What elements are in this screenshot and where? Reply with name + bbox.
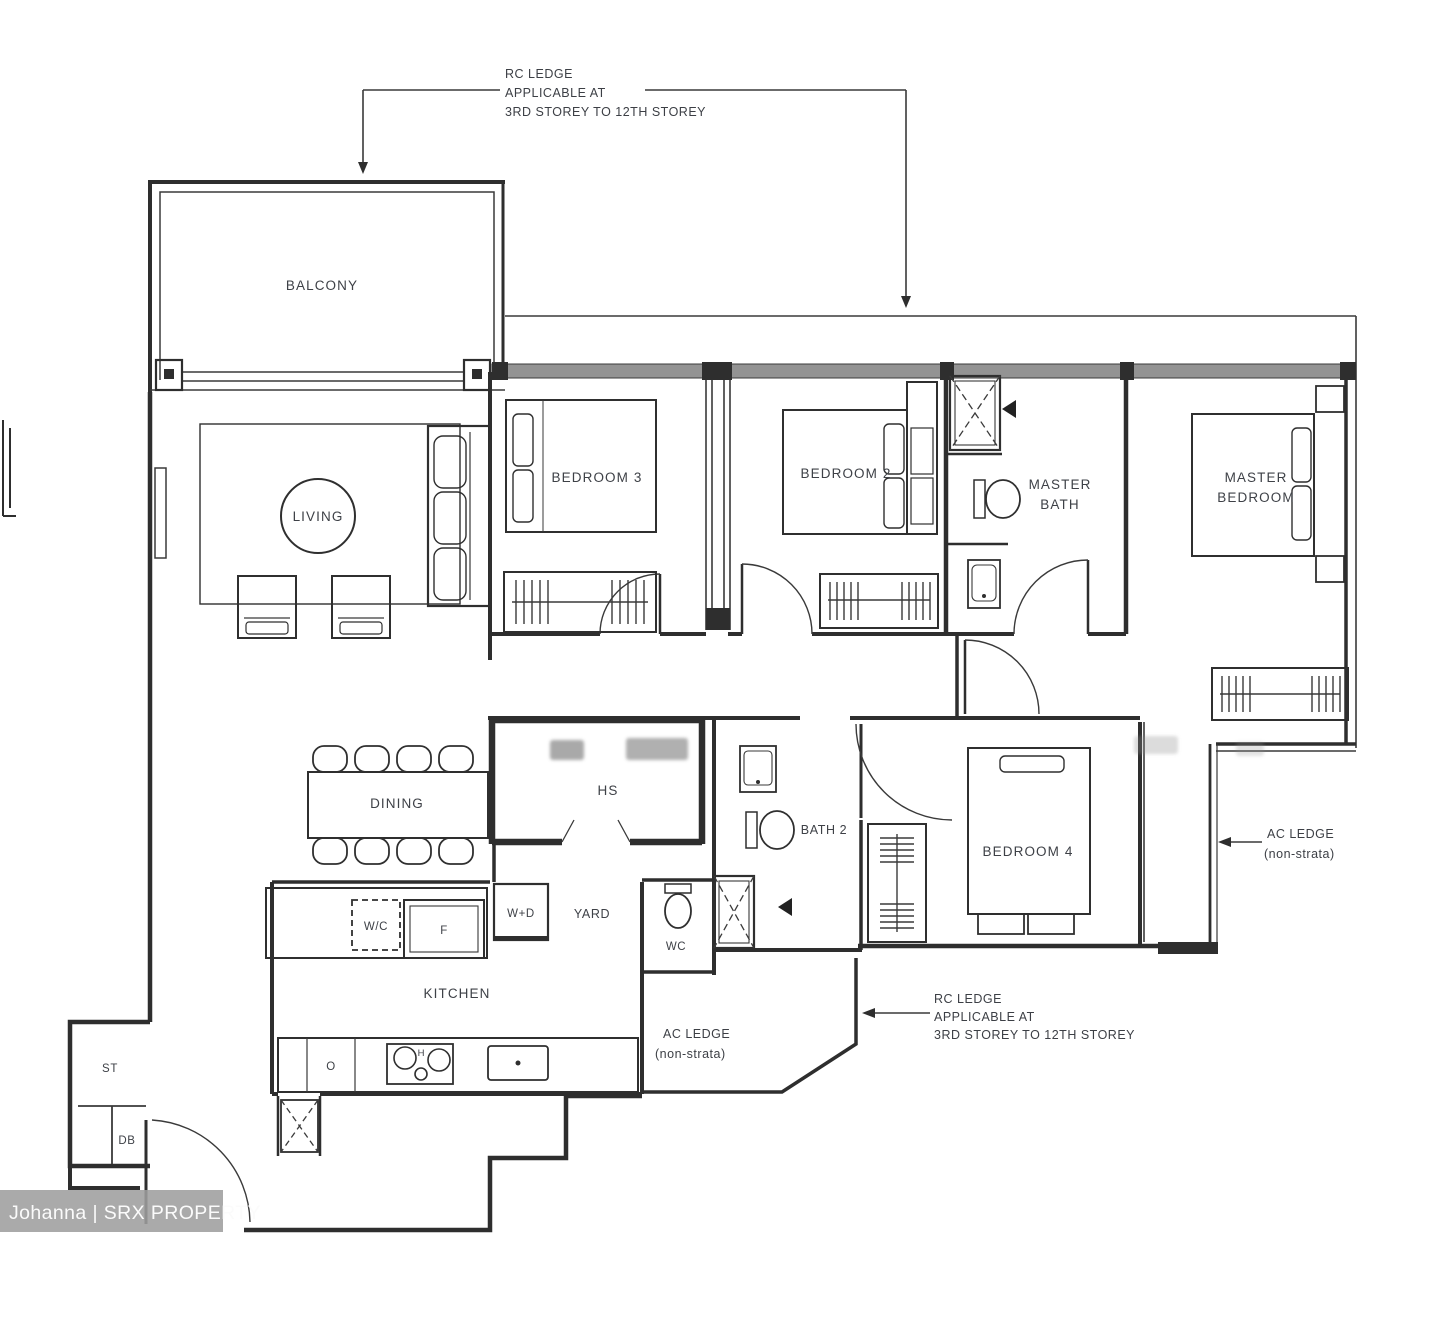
hs-shelf-marks xyxy=(550,736,1264,760)
db-label: DB xyxy=(118,1135,135,1147)
kitchen-label: KITCHEN xyxy=(424,986,491,1001)
master-bath-label-line1: MASTER xyxy=(1029,477,1092,492)
annotation-ac-ledge-bottom: AC LEDGE (non-strata) xyxy=(655,1027,730,1061)
hs-label: HS xyxy=(598,783,619,798)
washer-dryer-label: W+D xyxy=(507,908,535,920)
wardrobe-icon-bedroom2 xyxy=(820,574,938,628)
bedroom3-bedroom2-wall xyxy=(706,380,730,630)
wardrobe-icon-master-bedroom xyxy=(1212,668,1348,720)
floorplan-canvas: BALCONY LIVING BEDROOM 3 BEDROOM 2 MASTE… xyxy=(0,0,1440,1333)
bed-icon-bedroom4 xyxy=(968,748,1090,934)
ac-ledge-bottom-line2: (non-strata) xyxy=(655,1047,726,1061)
bedroom2-label: BEDROOM 2 xyxy=(801,466,892,481)
yard-label: YARD xyxy=(574,907,610,921)
bedroom-window-band xyxy=(492,362,1356,380)
balcony-sliding-door xyxy=(150,360,505,390)
kitchen-sink-icon xyxy=(488,1046,548,1080)
rc-ledge-bottom-line1: RC LEDGE xyxy=(934,992,1002,1006)
bath2-label: BATH 2 xyxy=(801,823,847,837)
ac-ledge-right-column xyxy=(1144,722,1218,954)
sofa-icon xyxy=(428,426,490,606)
wardrobe-icon-bedroom4 xyxy=(868,824,926,942)
sink-icon-bath2 xyxy=(740,746,776,792)
master-bath-door xyxy=(1014,560,1088,634)
bedroom3-label: BEDROOM 3 xyxy=(552,470,643,485)
bed-icon-bedroom2 xyxy=(783,382,937,534)
rc-ledge-top-leader-left xyxy=(363,90,500,164)
rc-ledge-bottom-line3: 3RD STOREY TO 12TH STOREY xyxy=(934,1028,1135,1042)
annotation-rc-ledge-top: RC LEDGE APPLICABLE AT 3RD STOREY TO 12T… xyxy=(358,67,911,308)
bedroom4-label: BEDROOM 4 xyxy=(983,844,1074,859)
adjacent-unit-wall-fragment xyxy=(3,420,16,516)
bedroom2-door xyxy=(742,564,812,634)
room-labels: BALCONY LIVING BEDROOM 3 BEDROOM 2 MASTE… xyxy=(102,278,1295,1147)
rc-ledge-top-line1: RC LEDGE xyxy=(505,67,573,81)
sink-icon-master-bath xyxy=(968,560,1000,608)
living-label: LIVING xyxy=(293,509,344,524)
living-window xyxy=(155,468,166,558)
floorplan-drawing: BALCONY LIVING BEDROOM 3 BEDROOM 2 MASTE… xyxy=(0,0,1440,1333)
bedroom3-door xyxy=(600,574,660,634)
annotation-rc-ledge-bottom: RC LEDGE APPLICABLE AT 3RD STOREY TO 12T… xyxy=(862,992,1135,1042)
master-bedroom-label-line2: BEDROOM xyxy=(1217,490,1294,505)
arrow-left-icon xyxy=(862,1008,875,1018)
shower-icon-master-bath xyxy=(950,376,1000,450)
exterior-walls xyxy=(3,182,1356,1230)
arrow-down-icon xyxy=(358,162,368,174)
wardrobe-icon-bedroom3 xyxy=(504,572,656,632)
master-bath-label-line2: BATH xyxy=(1040,497,1079,512)
toilet-icon-master-bath xyxy=(974,480,1020,518)
dining-label: DINING xyxy=(370,796,424,811)
rc-ledge-top-leader-right xyxy=(645,90,906,298)
ac-unit-recess xyxy=(278,1096,320,1156)
watermark-text: Johanna | SRX PROPERTY xyxy=(9,1202,261,1224)
shower-icon-bath2 xyxy=(714,876,754,948)
master-bath-shower-door-marker xyxy=(1002,400,1016,418)
store-label: ST xyxy=(102,1063,118,1075)
ac-ledge-right-line2: (non-strata) xyxy=(1264,847,1335,861)
arrow-left-icon xyxy=(1218,837,1231,847)
ac-ledge-right-line1: AC LEDGE xyxy=(1267,827,1334,841)
rc-ledge-top-line3: 3RD STOREY TO 12TH STOREY xyxy=(505,105,706,119)
arrow-down-icon xyxy=(901,296,911,308)
wc-label: WC xyxy=(666,941,686,953)
ac-ledge-bottom-line1: AC LEDGE xyxy=(663,1027,730,1041)
bath2-shower-door-marker xyxy=(778,898,792,916)
master-bath-stub-walls xyxy=(948,454,1008,544)
ac-ledge-bottom-outline xyxy=(642,958,856,1092)
toilet-icon-bath2 xyxy=(746,811,794,849)
hob-label: H xyxy=(418,1048,425,1059)
wc-cabinet-label: W/C xyxy=(364,921,388,933)
fridge-label: F xyxy=(440,925,448,937)
watermark: Johanna | SRX PROPERTY xyxy=(0,1190,261,1232)
master-bedroom-label-line1: MASTER xyxy=(1225,470,1288,485)
bottom-exterior-wall xyxy=(244,1096,642,1230)
master-bedroom-door xyxy=(965,640,1039,714)
oven-label: O xyxy=(326,1061,336,1073)
bed-icon-bedroom3 xyxy=(506,400,656,532)
rc-ledge-top-line2: APPLICABLE AT xyxy=(505,86,606,100)
master-bedroom-right-wall xyxy=(1216,372,1356,744)
balcony-label: BALCONY xyxy=(286,278,358,293)
armchair-icon xyxy=(332,576,390,638)
furniture xyxy=(200,376,1348,1092)
rc-ledge-bottom-line2: APPLICABLE AT xyxy=(934,1010,1035,1024)
annotation-ac-ledge-right: AC LEDGE (non-strata) xyxy=(1218,827,1335,861)
armchair-icon xyxy=(238,576,296,638)
bedroom4-door xyxy=(856,724,952,820)
store-room-walls xyxy=(70,1022,150,1188)
toilet-icon-wc xyxy=(665,884,691,928)
